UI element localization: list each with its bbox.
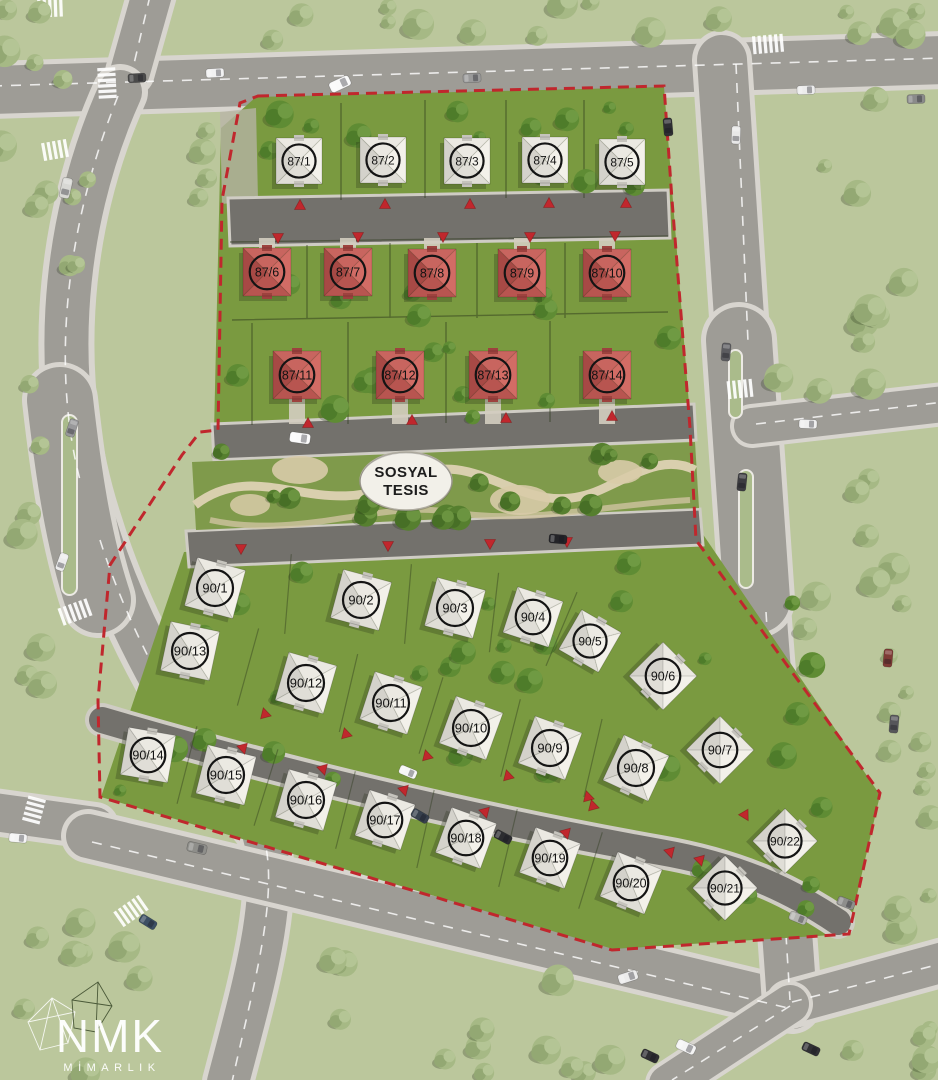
lot-number: 87/3 bbox=[455, 155, 479, 169]
car bbox=[737, 473, 748, 492]
lot-house-87-6[interactable]: 87/6 bbox=[239, 245, 291, 301]
lot-house-87-8[interactable]: 87/8 bbox=[404, 246, 456, 302]
lot-number: 90/10 bbox=[455, 721, 488, 736]
logo-subtitle: MİMARLIK bbox=[63, 1061, 160, 1074]
site-plan-render: 87/187/287/387/487/587/687/787/887/987/1… bbox=[0, 0, 938, 1080]
lot-number: 87/9 bbox=[510, 267, 534, 281]
lot-house-87-4[interactable]: 87/4 bbox=[518, 134, 568, 188]
lot-number: 90/7 bbox=[708, 744, 732, 758]
lot-house-87-14[interactable]: 87/14 bbox=[579, 348, 631, 404]
lot-number: 90/18 bbox=[450, 832, 481, 846]
logo-title: NMK bbox=[56, 1010, 164, 1062]
lot-number: 90/21 bbox=[710, 882, 740, 896]
car bbox=[9, 833, 28, 844]
site-plan-canvas: 87/187/287/387/487/587/687/787/887/987/1… bbox=[0, 0, 938, 1080]
lot-number: 87/7 bbox=[336, 266, 360, 280]
car bbox=[883, 649, 894, 668]
park-label-line1: SOSYAL bbox=[374, 464, 437, 481]
lot-number: 90/9 bbox=[537, 741, 562, 756]
car bbox=[463, 73, 481, 83]
lot-number: 87/11 bbox=[282, 369, 312, 383]
lot-number: 90/13 bbox=[174, 644, 207, 659]
lot-number: 87/10 bbox=[591, 267, 622, 281]
lot-house-87-12[interactable]: 87/12 bbox=[372, 348, 424, 404]
lot-number: 90/6 bbox=[651, 670, 675, 684]
park-label-line2: TESIS bbox=[383, 482, 429, 499]
car bbox=[799, 419, 817, 429]
lot-number: 90/12 bbox=[290, 676, 323, 691]
car bbox=[663, 118, 674, 137]
lot-house-87-13[interactable]: 87/13 bbox=[465, 348, 517, 404]
lot-number: 87/4 bbox=[533, 154, 557, 168]
lot-number: 87/14 bbox=[591, 369, 622, 383]
internal-road-row1-row2 bbox=[228, 190, 670, 246]
lot-number: 87/2 bbox=[371, 154, 395, 168]
lot-number: 90/14 bbox=[132, 749, 163, 763]
lot-number: 90/17 bbox=[369, 814, 400, 828]
park-label-oval bbox=[360, 452, 452, 510]
lot-house-87-9[interactable]: 87/9 bbox=[494, 246, 546, 302]
lot-number: 90/8 bbox=[623, 761, 648, 776]
lot-house-87-10[interactable]: 87/10 bbox=[579, 246, 631, 302]
car bbox=[889, 715, 900, 734]
lot-number: 90/19 bbox=[534, 852, 565, 866]
car bbox=[128, 73, 146, 83]
site-entry-apron bbox=[220, 108, 258, 204]
lot-number: 90/22 bbox=[770, 835, 800, 849]
lot-number: 90/3 bbox=[442, 601, 467, 616]
car bbox=[797, 85, 815, 95]
lot-number: 87/5 bbox=[610, 156, 634, 170]
lot-house-87-7[interactable]: 87/7 bbox=[320, 245, 372, 301]
lot-number: 90/11 bbox=[375, 696, 407, 711]
lot-number: 87/1 bbox=[287, 155, 311, 169]
lot-number: 87/12 bbox=[384, 369, 415, 383]
lot-house-87-11[interactable]: 87/11 bbox=[269, 348, 321, 404]
park-sand-patch bbox=[230, 494, 270, 516]
lot-number: 90/5 bbox=[578, 635, 602, 649]
car bbox=[731, 126, 741, 144]
lot-house-87-2[interactable]: 87/2 bbox=[356, 134, 406, 188]
lot-house-87-1[interactable]: 87/1 bbox=[272, 135, 322, 189]
lot-number: 87/6 bbox=[255, 266, 279, 280]
lot-number: 90/15 bbox=[210, 768, 243, 783]
car bbox=[907, 94, 925, 104]
park-label: SOSYAL TESIS bbox=[360, 452, 452, 511]
car bbox=[721, 343, 732, 362]
park-sand-patch bbox=[272, 456, 328, 484]
lot-number: 87/13 bbox=[477, 369, 508, 383]
lot-number: 90/4 bbox=[521, 611, 545, 625]
lot-house-87-5[interactable]: 87/5 bbox=[595, 136, 645, 190]
lot-number: 90/1 bbox=[202, 581, 227, 596]
car bbox=[549, 534, 568, 545]
lot-number: 90/2 bbox=[348, 593, 373, 608]
lot-number: 90/16 bbox=[290, 793, 323, 808]
lot-number: 87/8 bbox=[420, 267, 444, 281]
lot-number: 90/20 bbox=[615, 877, 646, 891]
car bbox=[206, 68, 224, 78]
lot-house-87-3[interactable]: 87/3 bbox=[440, 135, 490, 189]
